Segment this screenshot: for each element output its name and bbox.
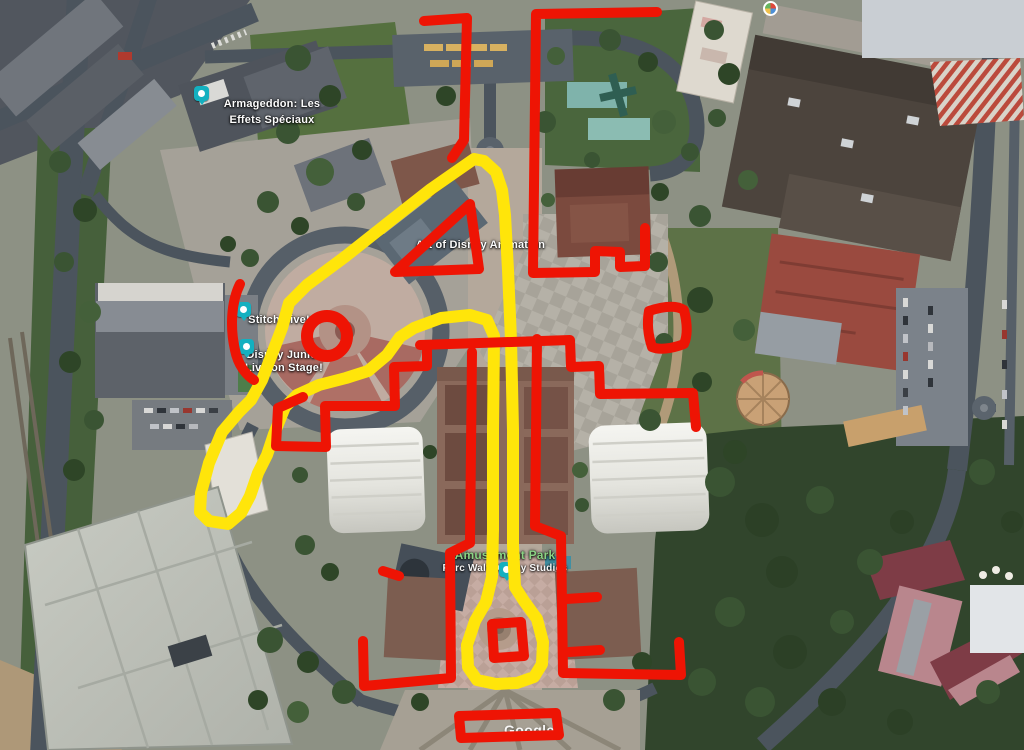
attraction-pin-stitch-live[interactable]	[236, 302, 251, 317]
google-watermark: Google	[504, 722, 555, 738]
attraction-pin-disney-junior[interactable]	[239, 339, 254, 354]
annotated-satellite-map[interactable]: Armageddon: Les Effets Spéciaux Art of D…	[0, 0, 1024, 750]
camera-icon	[243, 343, 250, 350]
dome-west	[326, 426, 426, 533]
label-armageddon[interactable]: Armageddon: Les Effets Spéciaux	[187, 96, 357, 128]
attraction-pin-armageddon[interactable]	[194, 86, 209, 101]
red-roof-complex	[755, 234, 920, 375]
photo-poi-marker[interactable]	[763, 1, 778, 16]
camera-icon	[198, 90, 205, 97]
plaza-building-east	[555, 568, 641, 660]
label-armageddon-line1: Armageddon: Les	[187, 96, 357, 112]
studio1-building	[437, 367, 574, 544]
label-park-name: Amusement Park	[420, 549, 590, 562]
hotel-white-wing	[970, 585, 1024, 653]
carousel	[737, 373, 789, 425]
park-pin-amusement-park[interactable]	[499, 562, 514, 577]
striped-awning	[930, 58, 1024, 126]
tower-of-terror	[555, 166, 652, 257]
dome-east	[588, 422, 710, 534]
satellite-imagery	[0, 0, 1024, 750]
white-building-topright	[862, 0, 1024, 58]
label-disney-junior-line2: Live on Stage!	[228, 362, 340, 375]
label-armageddon-line2: Effets Spéciaux	[187, 112, 357, 128]
circular-plaza	[265, 251, 425, 411]
camera-icon	[240, 306, 247, 313]
plaza-building-west	[384, 575, 454, 660]
fountain	[478, 608, 520, 650]
stitch-live-building	[95, 283, 225, 398]
label-art-of-disney-animation[interactable]: Art of Disney Animation	[408, 238, 553, 252]
label-animation-text: Art of Disney Animation	[408, 238, 553, 252]
camera-icon	[503, 566, 510, 573]
